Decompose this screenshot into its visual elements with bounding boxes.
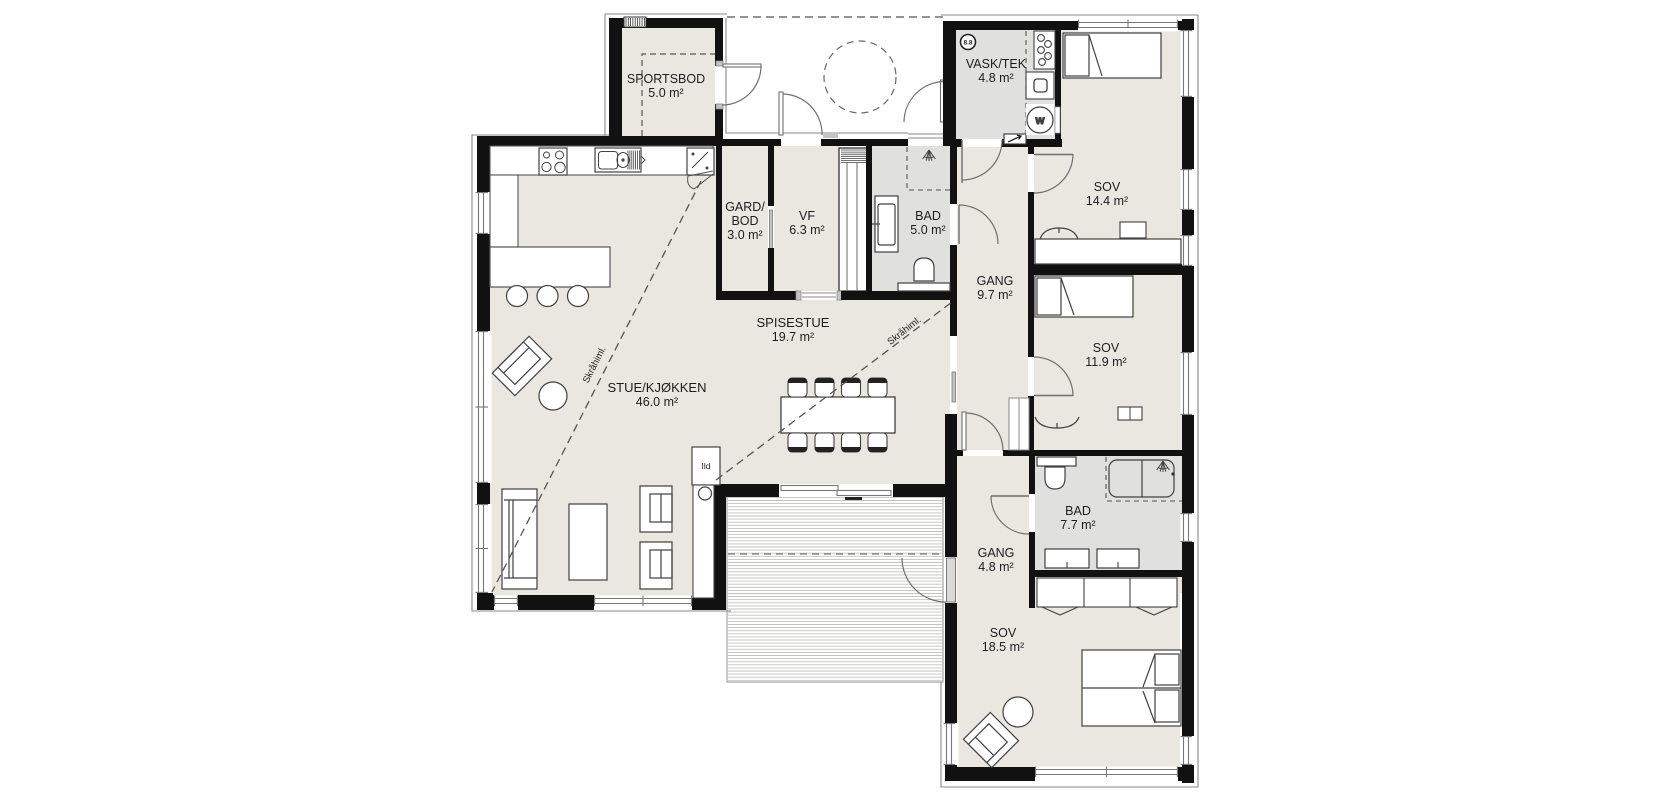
- svg-text:SOV: SOV: [1093, 341, 1120, 355]
- svg-text:SOV: SOV: [990, 626, 1017, 640]
- svg-text:3.0 m²: 3.0 m²: [727, 228, 762, 242]
- svg-text:46.0 m²: 46.0 m²: [636, 395, 678, 409]
- svg-text:STUE/KJØKKEN: STUE/KJØKKEN: [608, 380, 707, 395]
- svg-text:5.0 m²: 5.0 m²: [910, 223, 945, 237]
- svg-text:4.8 m²: 4.8 m²: [978, 71, 1013, 85]
- svg-text:GANG: GANG: [977, 274, 1014, 288]
- svg-text:SOV: SOV: [1094, 180, 1121, 194]
- svg-text:Ild: Ild: [702, 461, 711, 471]
- svg-text:7.7 m²: 7.7 m²: [1060, 518, 1095, 532]
- svg-text:SPISESTUE: SPISESTUE: [757, 315, 830, 330]
- svg-text:GARD/: GARD/: [725, 200, 765, 214]
- svg-text:BOD: BOD: [731, 214, 758, 228]
- svg-text:BAD: BAD: [1065, 504, 1091, 518]
- svg-text:5.0 m²: 5.0 m²: [648, 86, 683, 100]
- svg-text:VASK/TEK: VASK/TEK: [966, 57, 1027, 71]
- svg-text:BAD: BAD: [915, 209, 941, 223]
- svg-text:4.8 m²: 4.8 m²: [978, 560, 1013, 574]
- svg-text:18.5 m²: 18.5 m²: [982, 640, 1024, 654]
- svg-text:6.3 m²: 6.3 m²: [789, 223, 824, 237]
- svg-text:9.7 m²: 9.7 m²: [977, 288, 1012, 302]
- svg-text:11.9 m²: 11.9 m²: [1085, 355, 1126, 369]
- svg-text:19.7 m²: 19.7 m²: [772, 330, 814, 344]
- svg-text:14.4 m²: 14.4 m²: [1086, 194, 1128, 208]
- svg-text:GANG: GANG: [978, 546, 1015, 560]
- svg-text:8.8: 8.8: [963, 40, 972, 47]
- svg-text:SPORTSBOD: SPORTSBOD: [627, 72, 705, 86]
- svg-text:W: W: [1036, 116, 1045, 127]
- svg-text:VF: VF: [799, 209, 815, 223]
